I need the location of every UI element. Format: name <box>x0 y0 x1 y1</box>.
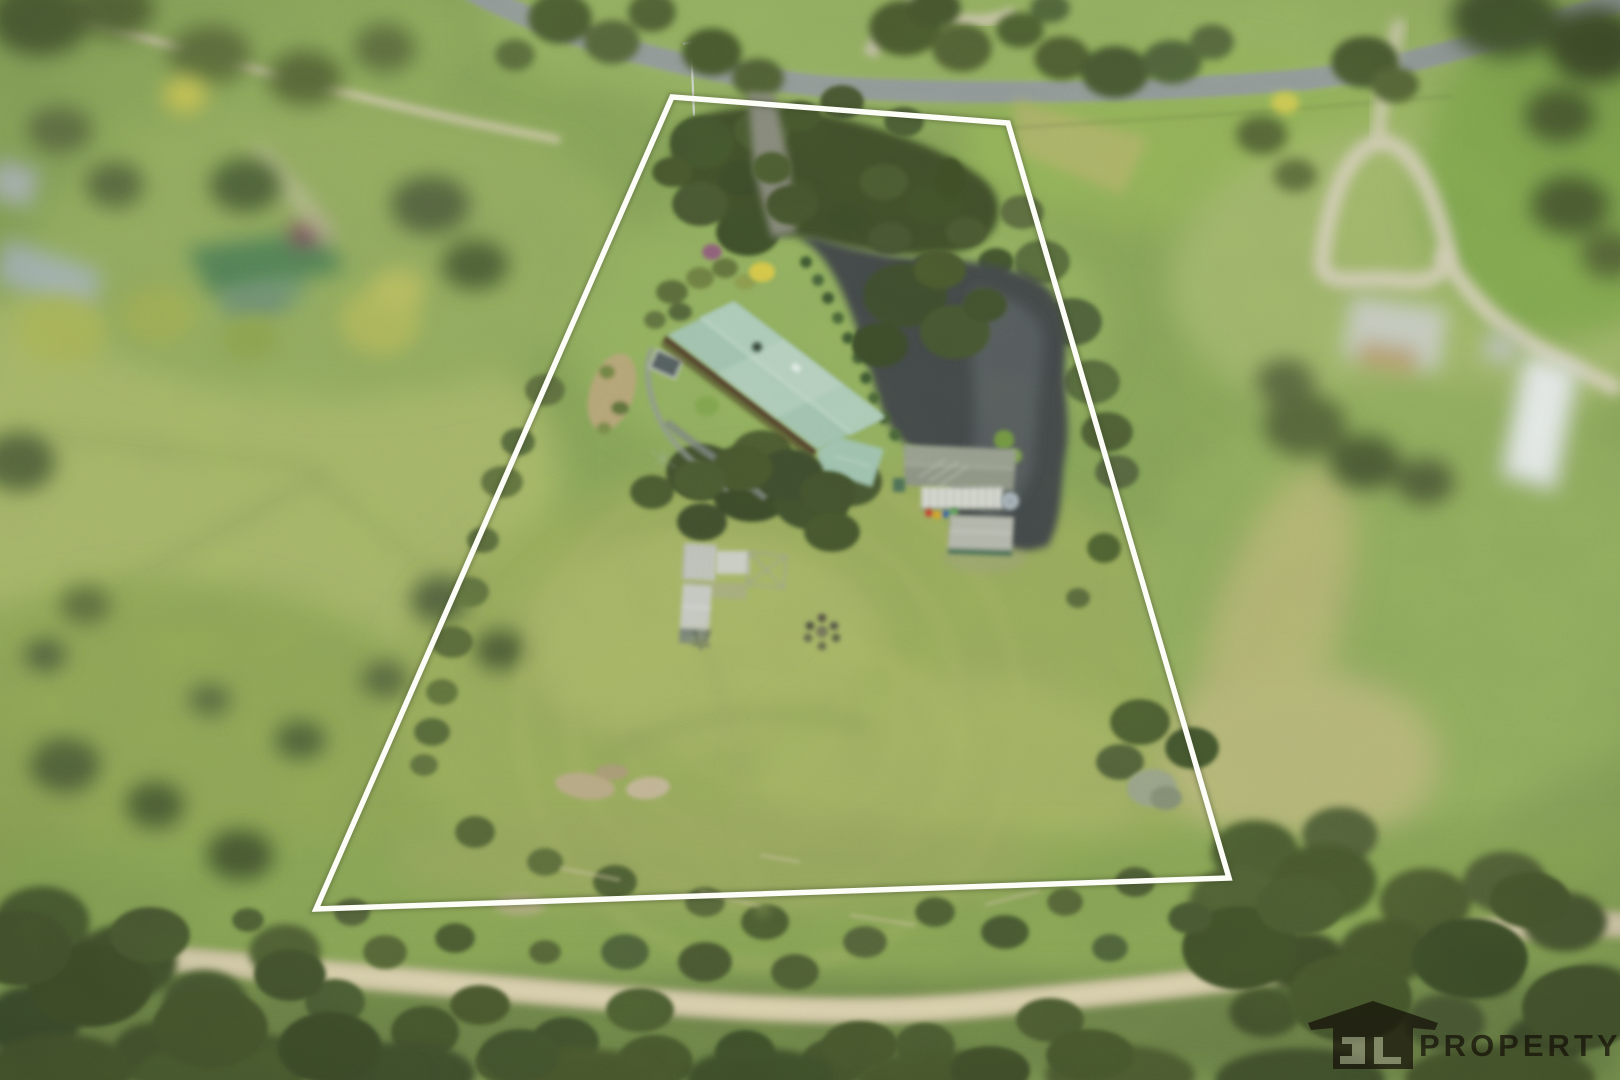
svg-text:PROPERTY: PROPERTY <box>1419 1028 1620 1063</box>
